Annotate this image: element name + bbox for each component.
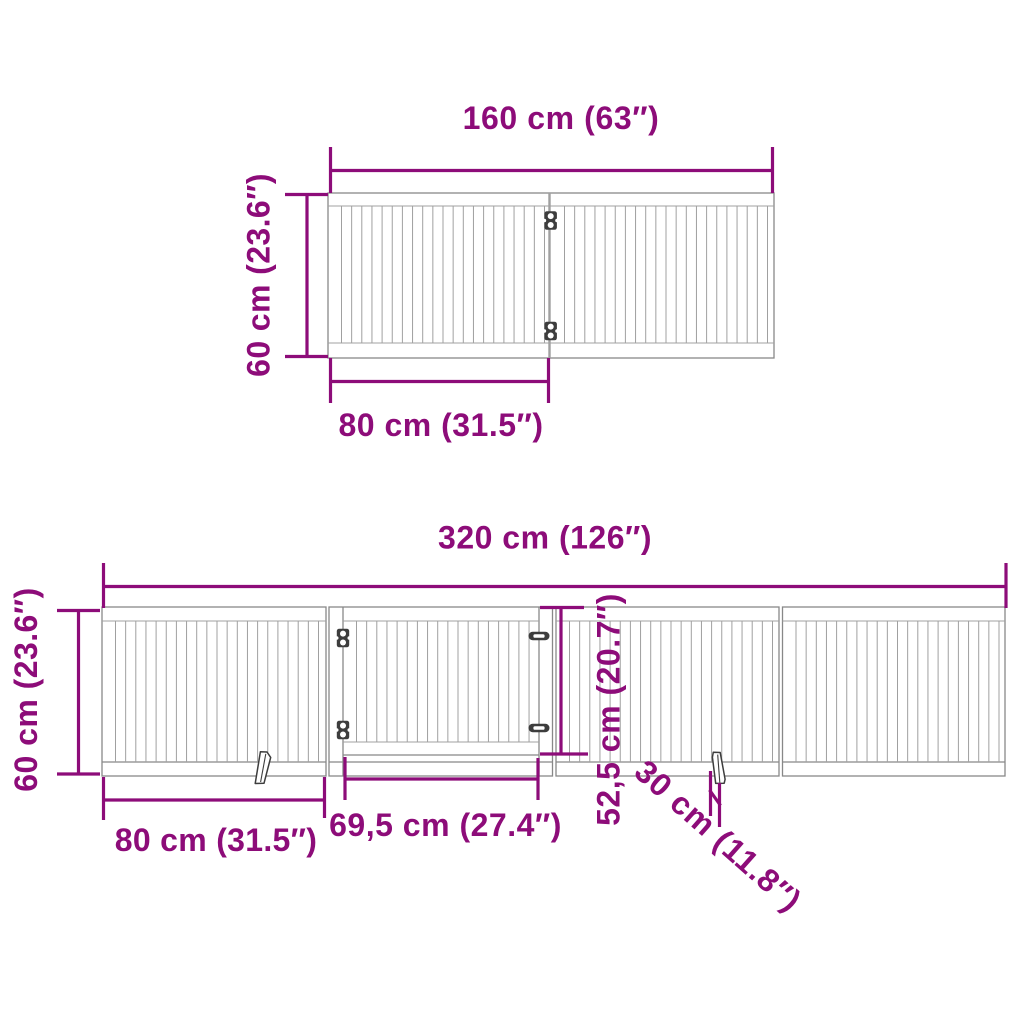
svg-text:320 cm (126″): 320 cm (126″) [438,520,652,556]
svg-text:80 cm (31.5″): 80 cm (31.5″) [338,407,543,443]
svg-text:69,5 cm (27.4″): 69,5 cm (27.4″) [329,807,562,843]
svg-text:160 cm (63″): 160 cm (63″) [463,100,660,136]
svg-text:60 cm (23.6″): 60 cm (23.6″) [8,587,44,791]
svg-text:60 cm (23.6″): 60 cm (23.6″) [241,173,277,377]
svg-text:80 cm (31.5″): 80 cm (31.5″) [115,822,317,858]
svg-text:52,5 cm (20.7″): 52,5 cm (20.7″) [591,593,627,826]
